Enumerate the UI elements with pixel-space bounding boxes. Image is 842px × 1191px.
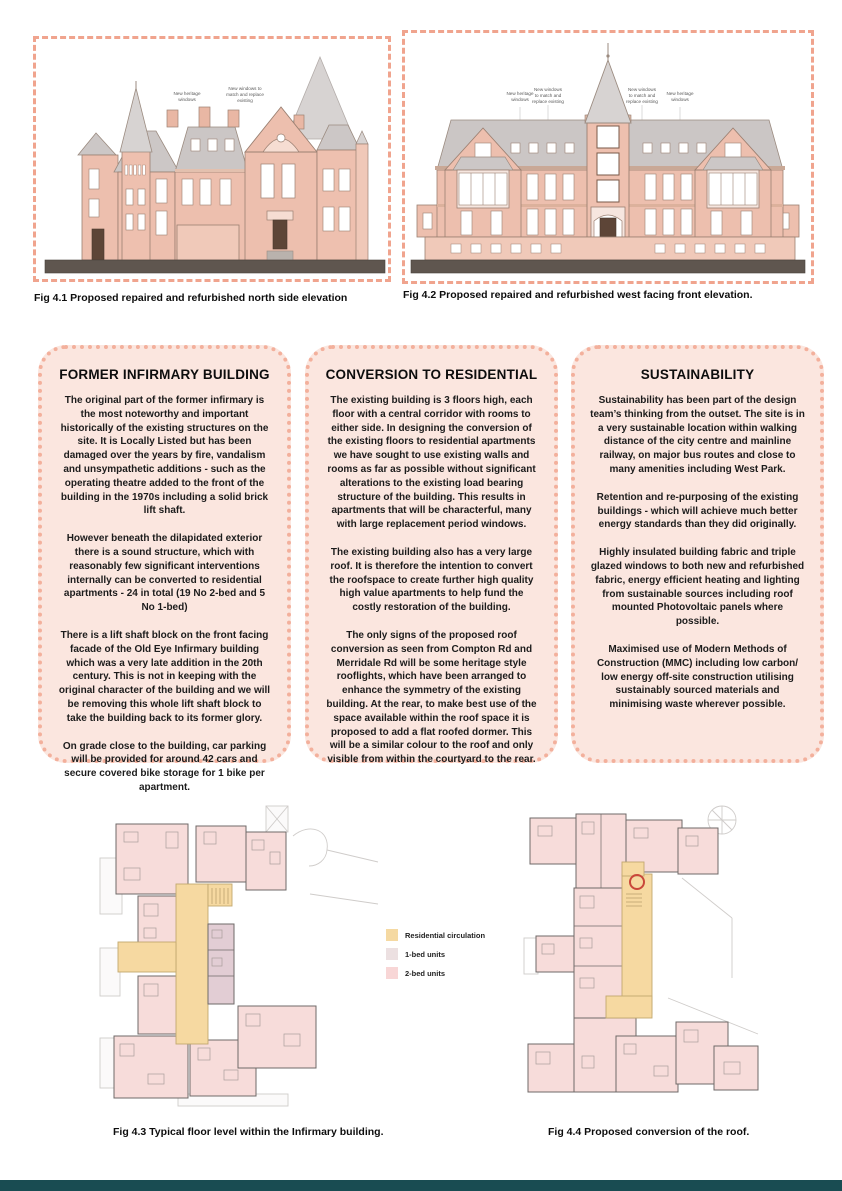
- left-end-block: [78, 133, 118, 260]
- panel-paragraph: However beneath the dilapidated exterior…: [57, 532, 272, 615]
- legend-item-1bed: 1-bed units: [386, 948, 485, 960]
- plan-legend: Residential circulation 1-bed units 2-be…: [386, 929, 485, 986]
- footer-accent-bar: [0, 1180, 842, 1191]
- legend-label: 2-bed units: [405, 969, 445, 978]
- panel-paragraph: Retention and re-purposing of the existi…: [590, 491, 805, 532]
- panel-paragraph: There is a lift shaft block on the front…: [57, 629, 272, 726]
- annotation-label: New heritage windows: [170, 91, 204, 103]
- floor-plan-typical-level: [88, 798, 380, 1110]
- panel-paragraph: Maximised use of Modern Methods of Const…: [590, 643, 805, 712]
- figure-4-1-caption: Fig 4.1 Proposed repaired and refurbishe…: [34, 292, 347, 304]
- ground-strip: [411, 260, 805, 273]
- panel-title: FORMER INFIRMARY BUILDING: [57, 367, 272, 382]
- legend-label: 1-bed units: [405, 950, 445, 959]
- annotation-label: New windows to match and replace existin…: [626, 87, 658, 105]
- figure-4-2-frame: New heritage windows New windows to matc…: [402, 30, 814, 284]
- figure-4-4-caption: Fig 4.4 Proposed conversion of the roof.: [548, 1126, 749, 1138]
- panel-paragraph: The existing building also has a very la…: [324, 546, 539, 615]
- annotation-label: New windows to match and replace existin…: [532, 87, 564, 105]
- panel-conversion-residential: CONVERSION TO RESIDENTIAL The existing b…: [305, 345, 558, 763]
- panel-paragraph: The existing building is 3 floors high, …: [324, 394, 539, 532]
- legend-item-circulation: Residential circulation: [386, 929, 485, 941]
- north-elevation-drawing: [36, 39, 388, 279]
- annotation-label: New windows to match and replace existin…: [225, 86, 265, 104]
- panel-paragraph: The original part of the former infirmar…: [57, 394, 272, 518]
- document-page: New heritage windows New windows to matc…: [0, 0, 842, 1191]
- west-elevation-drawing: [405, 33, 811, 281]
- legend-label: Residential circulation: [405, 931, 485, 940]
- panel-title: SUSTAINABILITY: [590, 367, 805, 382]
- roof-conversion-plan: [518, 798, 770, 1110]
- ground-strip: [45, 260, 385, 273]
- two-bed-swatch: [386, 967, 398, 979]
- figure-4-2-caption: Fig 4.2 Proposed repaired and refurbishe…: [403, 289, 753, 301]
- panel-sustainability: SUSTAINABILITY Sustainability has been p…: [571, 345, 824, 763]
- panel-paragraph: Sustainability has been part of the desi…: [590, 394, 805, 477]
- right-wing: [317, 125, 368, 260]
- floor-plan-4-4: [518, 798, 770, 1110]
- figure-4-3-caption: Fig 4.3 Typical floor level within the I…: [113, 1126, 384, 1138]
- legend-item-2bed: 2-bed units: [386, 967, 485, 979]
- annotation-label: New heritage windows: [664, 91, 696, 103]
- panel-former-infirmary: FORMER INFIRMARY BUILDING The original p…: [38, 345, 291, 763]
- basement-plinth: [425, 237, 795, 260]
- figure-4-1-frame: New heritage windows New windows to matc…: [33, 36, 391, 282]
- panel-paragraph: Highly insulated building fabric and tri…: [590, 546, 805, 629]
- panel-title: CONVERSION TO RESIDENTIAL: [324, 367, 539, 382]
- panel-paragraph: On grade close to the building, car park…: [57, 740, 272, 795]
- panel-paragraph: The only signs of the proposed roof conv…: [324, 629, 539, 767]
- corner-tower: [120, 81, 152, 260]
- middle-block: [175, 127, 248, 260]
- floor-plan-4-3: [88, 798, 380, 1110]
- circulation-swatch: [386, 929, 398, 941]
- one-bed-swatch: [386, 948, 398, 960]
